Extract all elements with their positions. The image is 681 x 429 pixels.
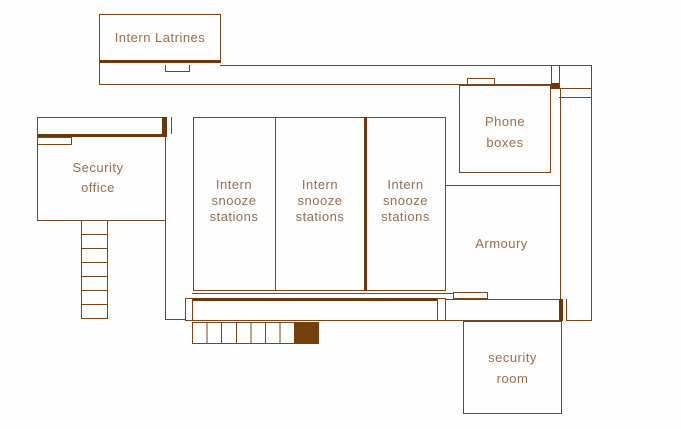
latrines-door [165,65,190,72]
staircase-landing-filled [294,322,319,344]
wall-right-strip-left [560,88,561,318]
bottom-corridor-door-jamb [437,298,446,321]
bottom-corridor-end-threshold [559,299,563,321]
wall-bottom-corridor-top-thick [192,298,437,301]
office-corner-post [162,117,167,137]
floor-plan: Intern Latrines Security office Intern s… [0,0,681,429]
label-snooze-2: Intern snooze stations [276,176,364,226]
wall-bottom-corridor-top-right [445,299,560,300]
label-phone-boxes: Phone boxes [459,108,551,156]
phone-boxes-door [467,78,495,85]
wall-topright-box-lower2 [559,97,592,98]
label-security-room: security room [463,346,562,390]
wall-outer-right [591,65,592,321]
label-snooze-1: Intern snooze stations [193,176,275,226]
wall-top-corridor-top [220,65,592,66]
wall-bottom-corridor-inner [192,293,453,294]
label-security-office: Security office [37,156,159,200]
wall-corridor-link [165,319,186,320]
wall-top-corridor-left-end [99,63,100,84]
staircase-bottom [192,322,295,344]
label-snooze-3: Intern snooze stations [366,176,445,226]
wall-armoury-top [445,185,560,186]
office-door [37,137,72,145]
label-intern-latrines: Intern Latrines [99,16,221,60]
armoury-door [453,292,488,299]
wall-right-strip-bottom [566,320,592,321]
top-corridor-end-jamb-right [559,65,560,88]
staircase-office [81,220,108,319]
bottom-corridor-end-jamb [566,299,567,321]
office-right-jamb [171,117,172,134]
wall-topright-box-lower1 [559,88,592,89]
top-corridor-end-threshold [551,83,559,89]
bottom-corridor-left-jamb [185,298,193,321]
label-armoury: Armoury [445,236,558,252]
wall-office-to-corridor [165,137,166,319]
